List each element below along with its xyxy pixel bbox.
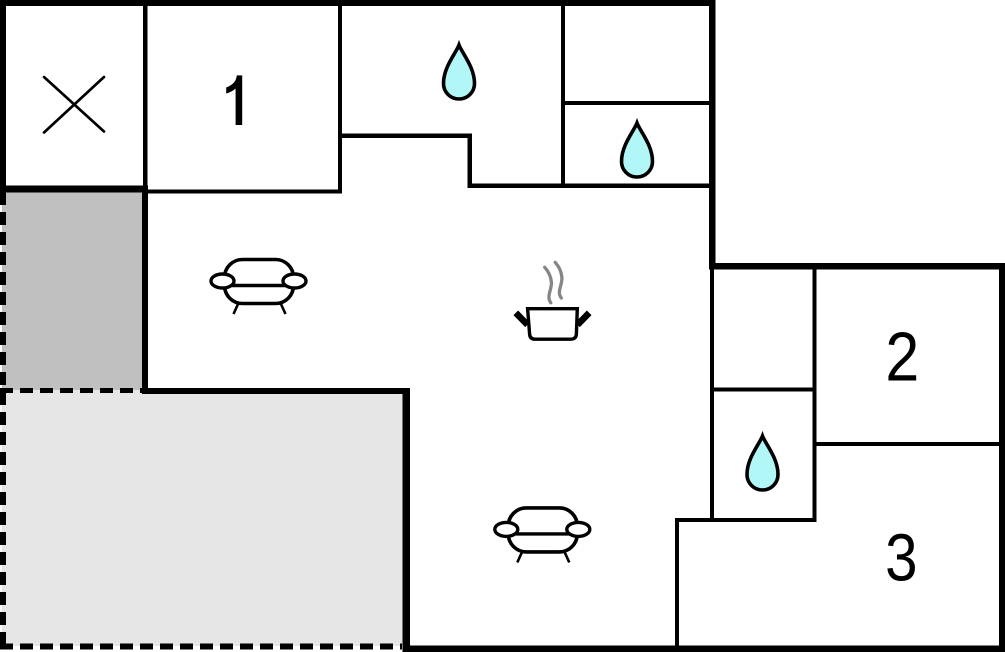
svg-text:2: 2 [885,318,919,396]
svg-text:3: 3 [885,521,917,596]
